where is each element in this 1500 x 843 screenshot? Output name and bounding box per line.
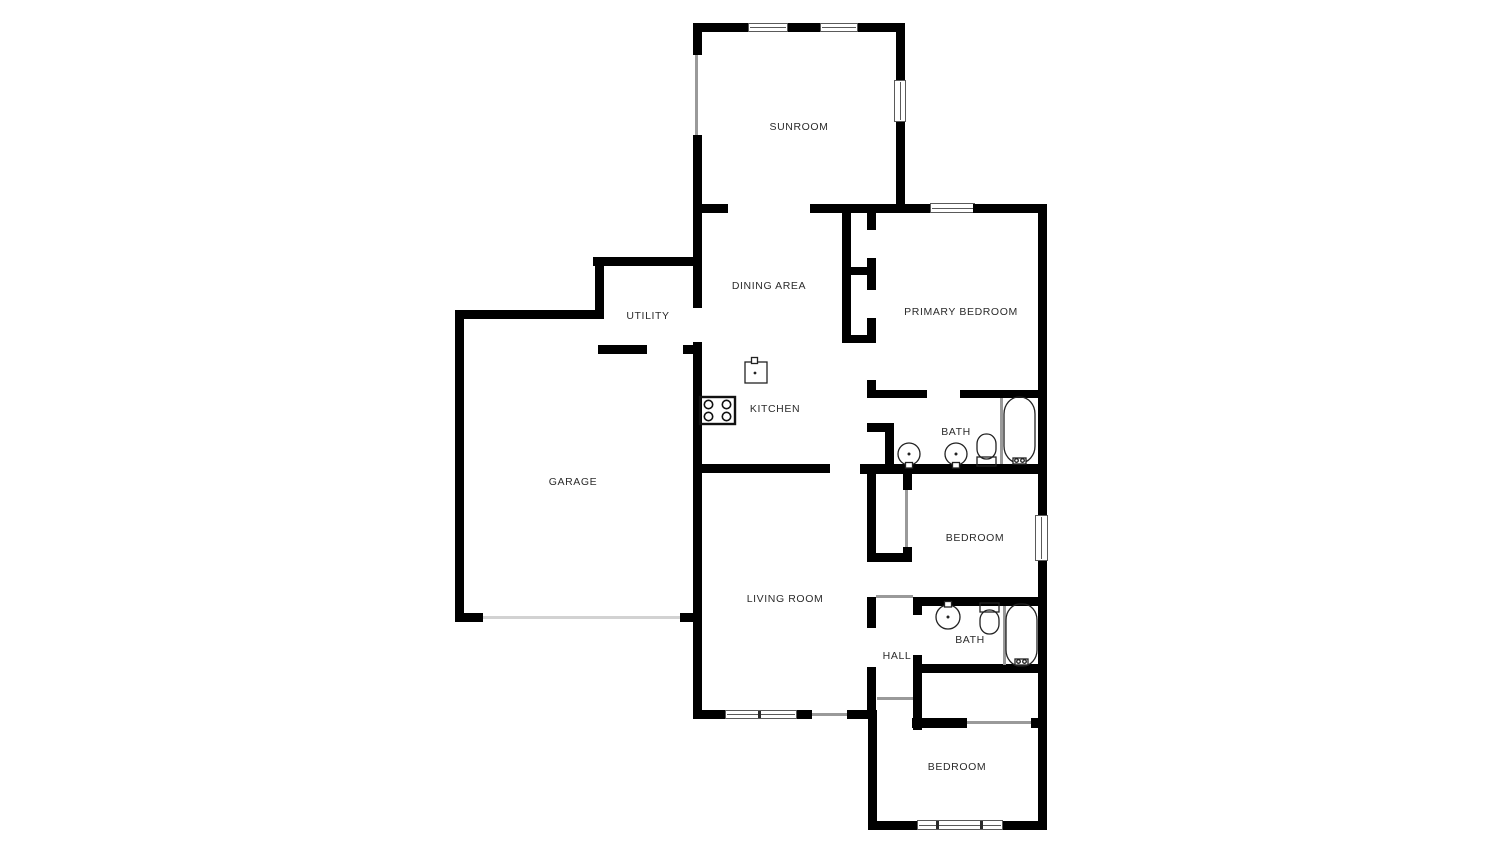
wall	[693, 23, 905, 32]
wall	[868, 821, 917, 830]
wall	[860, 464, 1047, 474]
room-label-bedroom-3: BEDROOM	[928, 761, 986, 773]
window	[894, 80, 906, 122]
room-label-sunroom: SUNROOM	[769, 121, 828, 133]
wall	[680, 613, 701, 622]
wall	[867, 597, 876, 628]
room-label-garage: GARAGE	[549, 476, 598, 488]
window	[917, 820, 1003, 830]
wall	[885, 423, 894, 465]
wall	[842, 335, 876, 343]
window	[820, 23, 858, 32]
window-divider	[980, 821, 983, 829]
room-label-utility: UTILITY	[626, 310, 669, 322]
partition-line	[812, 713, 847, 716]
wall	[903, 474, 912, 490]
room-label-primary-bedroom: PRIMARY BEDROOM	[904, 306, 1018, 318]
partition-line	[1000, 398, 1003, 465]
room-label-dining-area: DINING AREA	[732, 280, 806, 292]
wall	[896, 23, 905, 81]
wall	[842, 267, 876, 275]
wall	[960, 390, 1038, 398]
wall	[455, 310, 464, 622]
wall	[693, 23, 702, 55]
wall	[1003, 821, 1047, 830]
bathtub-icon	[1004, 397, 1035, 464]
window	[1035, 515, 1048, 561]
wall	[693, 204, 702, 308]
wall	[593, 257, 702, 266]
wall	[867, 553, 912, 562]
wall	[867, 667, 876, 719]
wall	[913, 597, 922, 615]
wall	[912, 718, 967, 728]
wall	[867, 380, 876, 398]
garage-door-line	[483, 616, 680, 619]
wall	[868, 718, 877, 830]
partition-line	[967, 721, 1031, 724]
window	[930, 203, 975, 213]
partition-line	[695, 55, 698, 135]
room-label-kitchen: KITCHEN	[750, 403, 800, 415]
room-label-living-room: LIVING ROOM	[747, 593, 824, 605]
partition-line	[1003, 606, 1006, 665]
floor-plan: SUNROOM DINING AREA UTILITY KITCHEN GARA…	[0, 0, 1500, 843]
partition-line	[877, 697, 913, 700]
window-divider	[936, 821, 939, 829]
wall	[896, 122, 905, 213]
stove-icon	[700, 397, 735, 424]
wall	[693, 710, 725, 719]
partition-line	[905, 490, 908, 547]
wall	[455, 613, 483, 622]
window	[725, 710, 797, 719]
wall	[973, 204, 1047, 213]
wall	[922, 664, 1047, 673]
wall	[913, 597, 1047, 606]
wall	[867, 473, 876, 562]
wall	[693, 342, 702, 718]
kitchen-sink-icon	[745, 358, 767, 384]
window-divider	[758, 711, 761, 718]
wall	[1031, 718, 1047, 728]
wall	[693, 464, 830, 473]
bathtub-icon	[1006, 604, 1037, 666]
wall	[867, 204, 876, 230]
room-label-bedroom-2: BEDROOM	[946, 532, 1004, 544]
room-label-hall: HALL	[883, 650, 912, 662]
window	[748, 23, 788, 32]
partition-line	[876, 595, 913, 598]
toilet-icon	[977, 434, 996, 466]
wall	[693, 135, 702, 213]
wall	[876, 390, 927, 398]
wall	[598, 345, 647, 354]
wall	[797, 710, 812, 719]
wall	[455, 310, 604, 319]
toilet-icon	[980, 603, 999, 634]
room-label-bath-1: BATH	[941, 426, 971, 438]
room-label-bath-2: BATH	[955, 634, 985, 646]
